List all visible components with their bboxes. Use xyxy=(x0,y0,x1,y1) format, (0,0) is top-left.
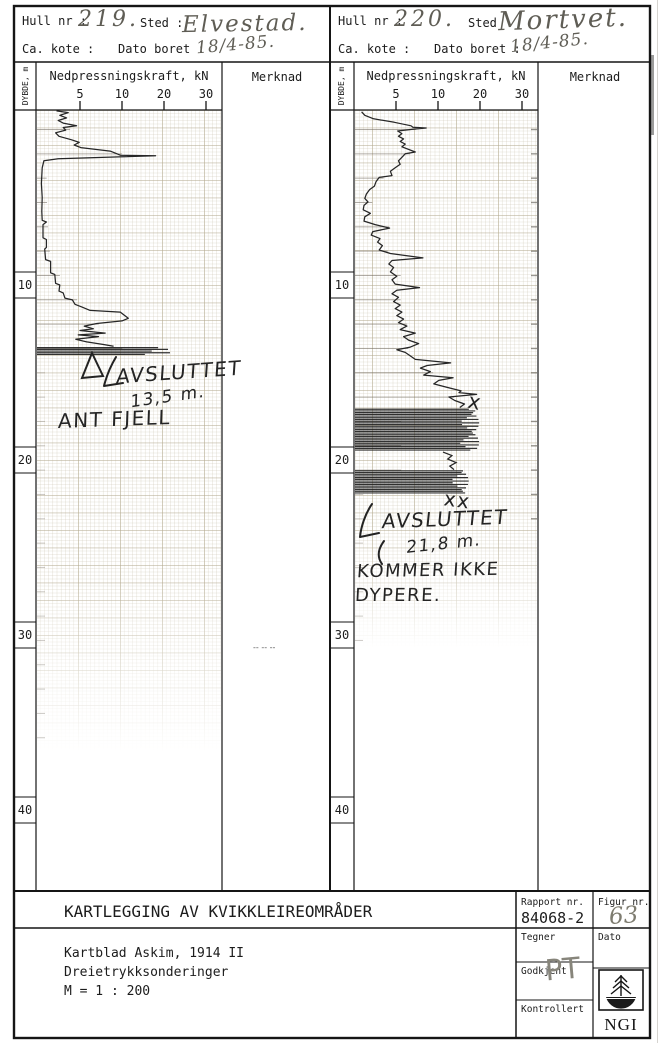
axis-tick-5-219: 5 xyxy=(70,87,90,101)
hull-nr-value-220: 220. xyxy=(394,7,455,32)
footer-title: KARTLEGGING AV KVIKKLEIREOMRÅDER xyxy=(64,902,372,921)
depth-label-20-219: 20 xyxy=(14,453,36,467)
dato-boret-label-219: Dato boret : xyxy=(118,42,205,56)
kontrollert-label: Kontrollert xyxy=(521,1004,584,1015)
merknad-scan-dashes-219: -- -- -- xyxy=(253,643,275,652)
tegner-label: Tegner xyxy=(521,932,555,943)
axis-tick-5-220: 5 xyxy=(386,87,406,101)
depth-label-30-220: 30 xyxy=(330,628,354,642)
hull-nr-value-219: 219. xyxy=(78,7,139,32)
sted-label-220: Sted xyxy=(468,16,497,30)
annotation-ant-fjell-219: ANT FJELL xyxy=(58,405,172,433)
merknad-label-220: Merknad xyxy=(548,70,642,84)
depth-label-40-219: 40 xyxy=(14,803,36,817)
depth-label-20-220: 20 xyxy=(330,453,354,467)
annotation-dypere-220: DYPERE. xyxy=(354,585,441,606)
force-axis-label-219: Nedpressningskraft, kN xyxy=(36,69,222,83)
scanned-sounding-log-sheet: Hull nr : 219. Sted : Elvestad. Ca. kote… xyxy=(0,0,663,1043)
axis-tick-20-219: 20 xyxy=(154,87,174,101)
axis-tick-10-219: 10 xyxy=(112,87,132,101)
scan-page-edge xyxy=(657,0,658,1043)
figur-nr-value: 63 xyxy=(608,902,639,930)
ngi-logo: NGI xyxy=(596,968,648,1038)
kote-label-220: Ca. kote : xyxy=(338,42,410,56)
footer-method: Dreietrykksonderinger xyxy=(64,965,228,980)
ngi-logo-text: NGI xyxy=(604,1015,637,1034)
depth-label-10-219: 10 xyxy=(14,278,36,292)
annotation-avsluttet-220: AVSLUTTET xyxy=(381,505,509,534)
rapport-nr-label: Rapport nr. xyxy=(521,897,584,908)
godkjent-signature: PT xyxy=(544,951,582,988)
sted-label-219: Sted : xyxy=(140,16,183,30)
axis-tick-20-220: 20 xyxy=(470,87,490,101)
scan-edge-smudge xyxy=(651,55,654,135)
axis-tick-10-220: 10 xyxy=(428,87,448,101)
kote-label-219: Ca. kote : xyxy=(22,42,94,56)
depth-axis-label-220: DYBDE, m xyxy=(337,64,347,108)
depth-axis-label-219: DYBDE, m xyxy=(21,64,31,108)
depth-label-30-219: 30 xyxy=(14,628,36,642)
force-axis-label-220: Nedpressningskraft, kN xyxy=(354,69,538,83)
dato-boret-label-220: Dato boret : xyxy=(434,42,521,56)
depth-label-40-220: 40 xyxy=(330,803,354,817)
annotation-kommer-ikke-220: KOMMER IKKE xyxy=(356,559,500,583)
axis-tick-30-220: 30 xyxy=(512,87,532,101)
chart-linework-svg xyxy=(0,0,663,1043)
dato-label: Dato xyxy=(598,932,621,943)
axis-tick-30-219: 30 xyxy=(196,87,216,101)
depth-label-10-220: 10 xyxy=(330,278,354,292)
footer-scale: M = 1 : 200 xyxy=(64,984,150,999)
footer-kartblad: Kartblad Askim, 1914 II xyxy=(64,946,244,961)
rapport-nr-value: 84068-2 xyxy=(521,909,584,927)
spruce-tree-icon xyxy=(611,975,631,996)
merknad-label-219: Merknad xyxy=(232,70,322,84)
